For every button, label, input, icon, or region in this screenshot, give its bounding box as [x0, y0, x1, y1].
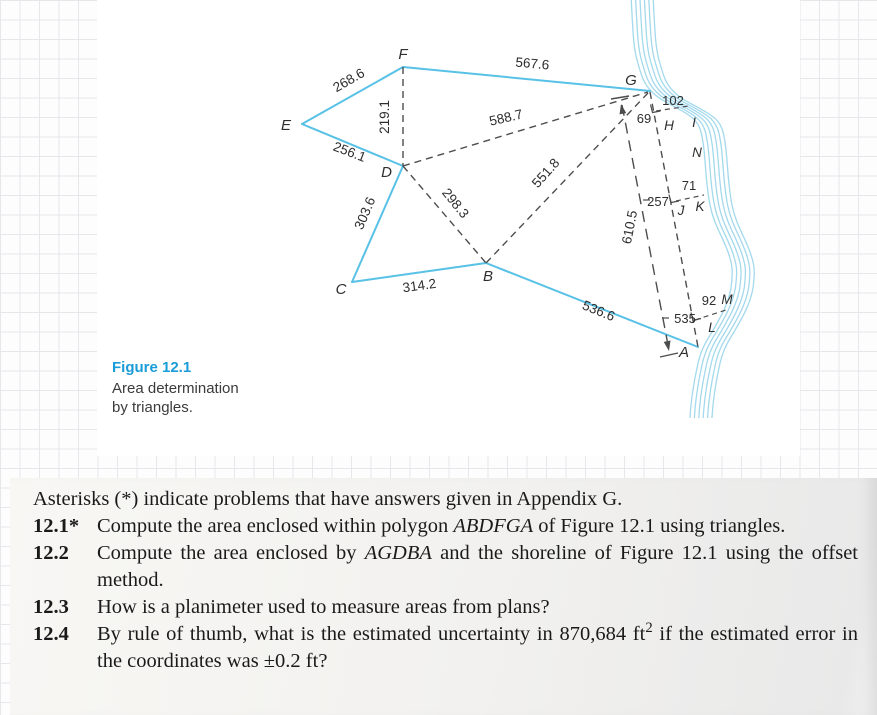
problems-intro: Asterisks (*) indicate problems that hav…: [33, 486, 858, 513]
problem-number: 12.4: [33, 621, 97, 675]
figure-caption: Figure 12.1 Area determination by triang…: [112, 358, 282, 417]
figure-caption-label: Figure 12.1: [112, 358, 282, 377]
problem-text: By rule of thumb, what is the estimated …: [97, 621, 858, 675]
problem-number: 12.1*: [33, 513, 97, 540]
problem-12-1: 12.1* Compute the area enclosed within p…: [33, 513, 858, 540]
figure-caption-line1: Area determination: [112, 379, 282, 398]
problem-text: Compute the area enclosed by AGDBA and t…: [97, 540, 858, 594]
problem-text: How is a planimeter used to measure area…: [97, 594, 858, 621]
problem-text: Compute the area enclosed within polygon…: [97, 513, 858, 540]
problem-number: 12.3: [33, 594, 97, 621]
problems-page: Asterisks (*) indicate problems that hav…: [10, 478, 877, 715]
problem-12-4: 12.4 By rule of thumb, what is the estim…: [33, 621, 858, 675]
problem-12-2: 12.2 Compute the area enclosed by AGDBA …: [33, 540, 858, 594]
problem-12-3: 12.3 How is a planimeter used to measure…: [33, 594, 858, 621]
figure-caption-line2: by triangles.: [112, 398, 282, 417]
problem-number: 12.2: [33, 540, 97, 594]
